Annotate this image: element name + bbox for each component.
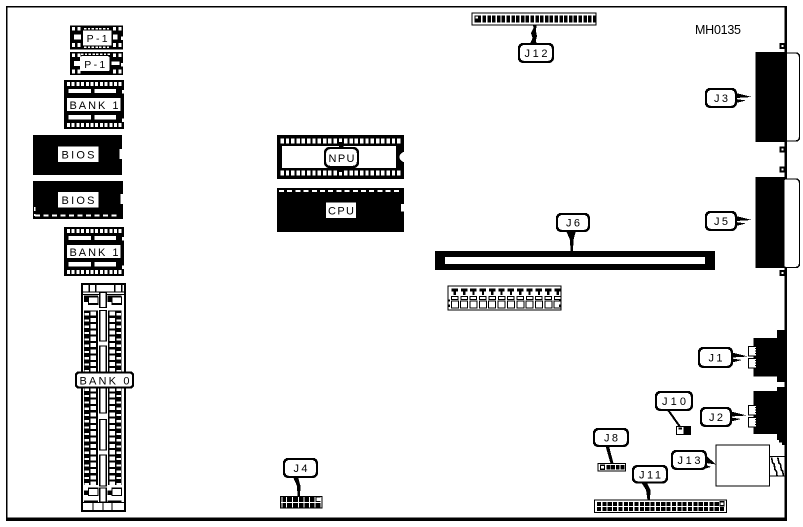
svg-text:P-1: P-1 <box>87 33 108 45</box>
svg-text:J8: J8 <box>604 433 618 445</box>
svg-text:MH0135: MH0135 <box>695 23 741 37</box>
svg-text:J10: J10 <box>662 396 686 408</box>
svg-text:BIOS: BIOS <box>62 195 95 207</box>
svg-text:J2: J2 <box>709 412 723 424</box>
svg-text:J12: J12 <box>525 48 548 60</box>
svg-text:NPU: NPU <box>329 153 355 165</box>
svg-text:CPU: CPU <box>328 206 354 218</box>
svg-text:J13: J13 <box>678 455 701 467</box>
svg-text:J3: J3 <box>714 93 728 105</box>
svg-text:J5: J5 <box>714 216 728 228</box>
svg-text:P-1: P-1 <box>84 59 105 71</box>
svg-text:J4: J4 <box>294 463 308 475</box>
svg-text:BIOS: BIOS <box>62 150 95 162</box>
svg-text:J11: J11 <box>639 469 661 481</box>
svg-text:J6: J6 <box>566 218 580 230</box>
svg-text:J1: J1 <box>709 353 723 365</box>
